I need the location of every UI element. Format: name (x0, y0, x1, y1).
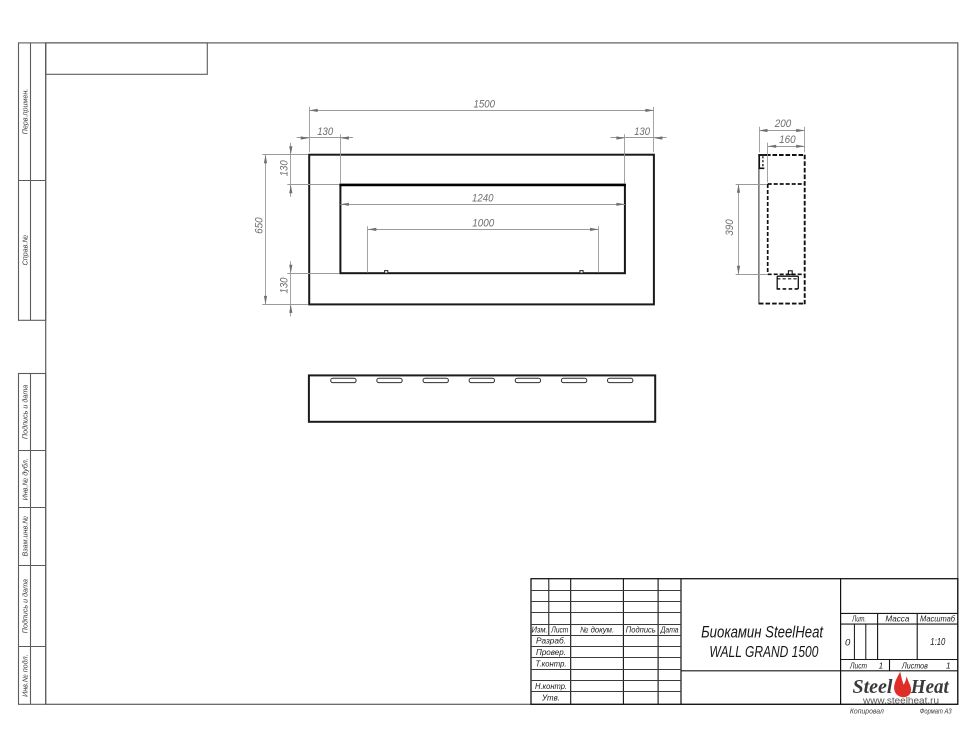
svg-text:Т.контр.: Т.контр. (536, 659, 567, 668)
svg-text:Лит.: Лит. (851, 615, 866, 624)
svg-text:Утв.: Утв. (541, 693, 560, 702)
svg-text:130: 130 (279, 277, 291, 294)
svg-text:WALL GRAND 1500: WALL GRAND 1500 (709, 644, 818, 661)
svg-text:№ докум.: № докум. (580, 625, 614, 634)
svg-text:Разраб.: Разраб. (536, 637, 566, 646)
svg-text:Листов: Листов (901, 661, 928, 670)
svg-text:Масштаб: Масштаб (920, 615, 955, 624)
svg-text:Подпись и дата: Подпись и дата (20, 385, 29, 439)
svg-text:Дата: Дата (660, 625, 679, 634)
svg-text:Лист: Лист (849, 661, 867, 670)
svg-text:Формат А3: Формат А3 (920, 706, 953, 715)
svg-text:200: 200 (774, 118, 792, 130)
svg-text:Перв.примен.: Перв.примен. (20, 89, 29, 135)
svg-text:390: 390 (724, 218, 736, 235)
svg-text:130: 130 (634, 126, 651, 138)
svg-text:1240: 1240 (472, 192, 494, 204)
svg-text:Изм.: Изм. (532, 625, 548, 634)
svg-text:1:10: 1:10 (930, 637, 945, 648)
svg-text:Биокамин SteelHeat: Биокамин SteelHeat (701, 624, 824, 642)
svg-text:650: 650 (254, 217, 266, 234)
svg-text:130: 130 (317, 126, 334, 138)
svg-text:Подпись и дата: Подпись и дата (20, 579, 29, 633)
svg-text:Инв.№ подл.: Инв.№ подл. (20, 654, 29, 697)
svg-text:Н.контр.: Н.контр. (535, 682, 567, 691)
svg-text:Провер.: Провер. (536, 648, 566, 657)
svg-text:Инв.№ дубл.: Инв.№ дубл. (20, 458, 29, 500)
svg-text:Подпись: Подпись (626, 625, 656, 634)
svg-text:Лист: Лист (550, 625, 568, 634)
svg-text:0: 0 (845, 637, 851, 648)
svg-text:Справ.№: Справ.№ (20, 235, 29, 266)
svg-text:160: 160 (779, 134, 796, 146)
svg-text:Масса: Масса (885, 615, 909, 624)
svg-text:1000: 1000 (472, 217, 495, 229)
svg-text:www.steelheat.ru: www.steelheat.ru (862, 695, 939, 706)
svg-text:130: 130 (279, 160, 291, 177)
svg-text:Копировал: Копировал (850, 706, 885, 715)
svg-text:Взам.инв.№: Взам.инв.№ (20, 516, 29, 557)
svg-text:1: 1 (946, 661, 951, 670)
svg-text:1: 1 (879, 661, 884, 670)
svg-text:1500: 1500 (474, 98, 496, 110)
